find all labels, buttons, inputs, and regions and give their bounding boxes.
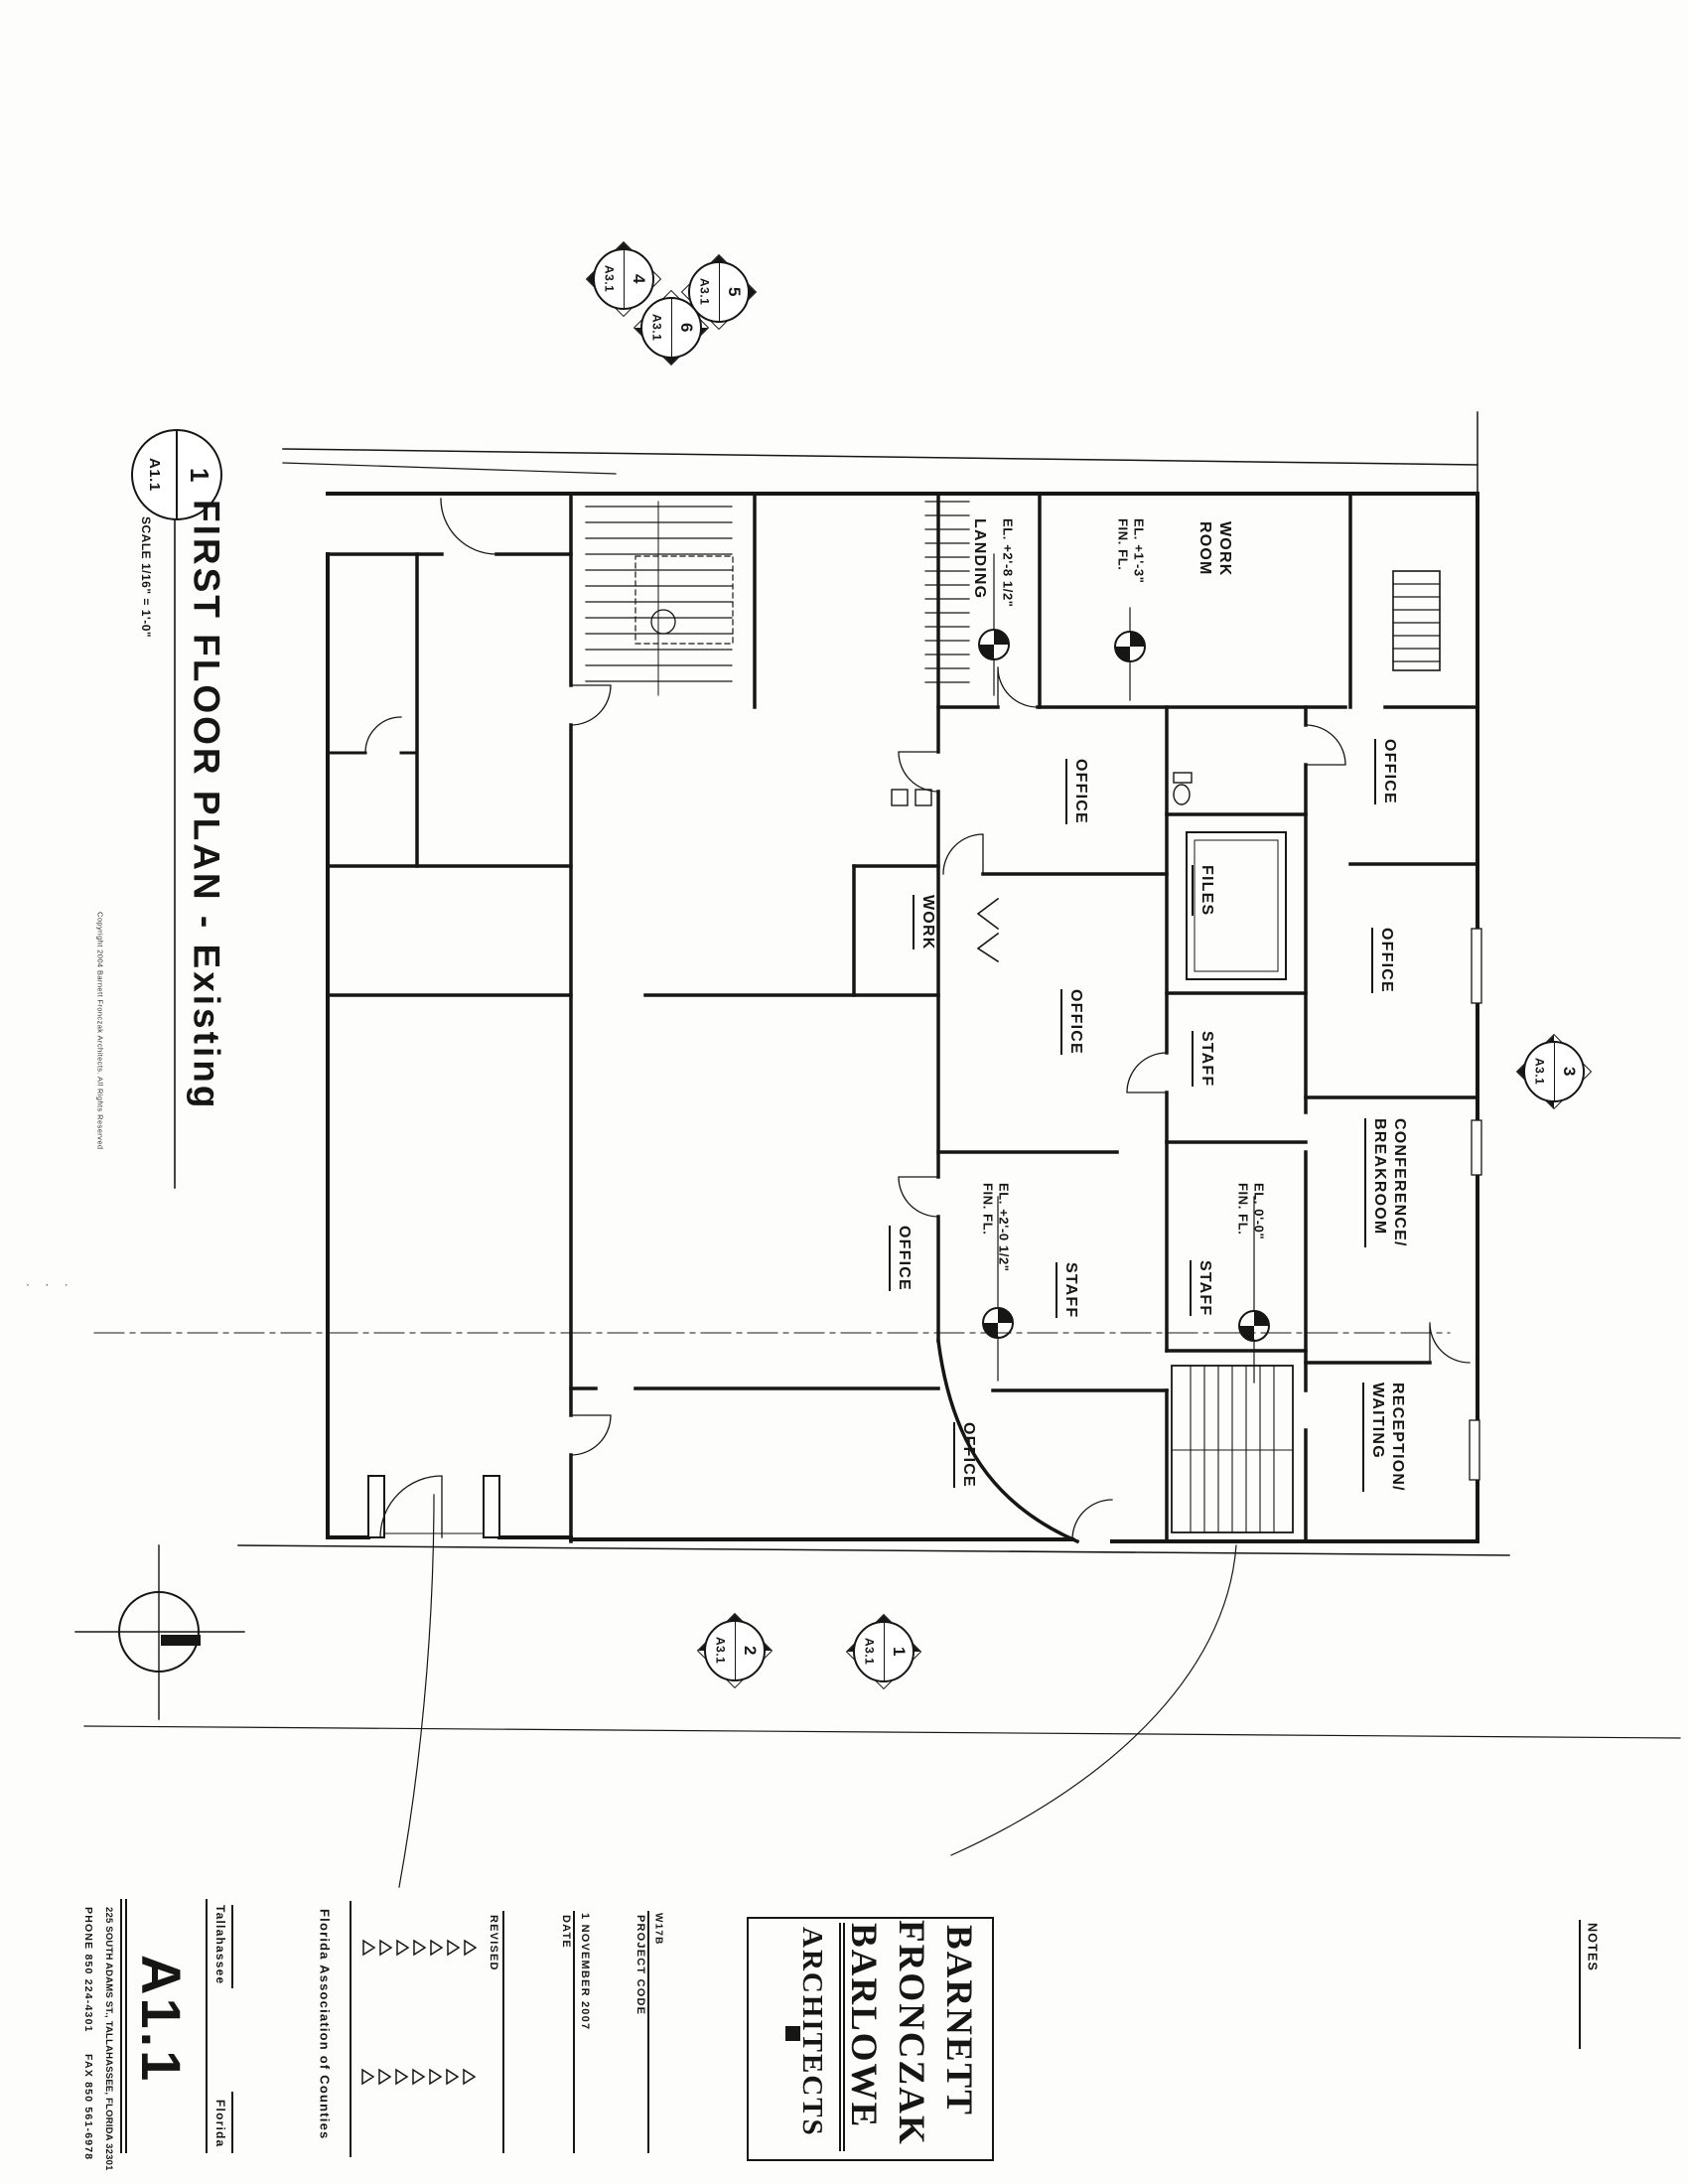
floor-plan-drawing [0, 0, 1688, 2184]
copyright-note: Copyright 2004 Barnett Fronczak Architec… [95, 912, 104, 1149]
room-label-reception-waiting: RECEPTION/ WAITING [1362, 1383, 1407, 1492]
titleblock-client: Florida Association of Counties [316, 1909, 332, 2139]
elevation-callout-corridor: EL. +2'-0 1/2" FIN. FL. [979, 1183, 1012, 1272]
architect-logo-rule [843, 1923, 845, 2151]
titleblock-date-value: 1 NOVEMBER 2007 [577, 1913, 591, 2030]
detail-marker-6: A3.16 [632, 288, 711, 367]
detail-marker-3: A3.13 [1514, 1032, 1594, 1111]
titleblock-rule [350, 1901, 352, 2157]
tick-dots: · · · [26, 1277, 74, 1291]
room-label-staff-3: STAFF [1190, 1260, 1214, 1316]
titleblock-fax: FAX 850 561-6978 [81, 2054, 94, 2160]
room-label-office-center-mid: OFFICE [1060, 989, 1085, 1055]
elevation-callout-workroom: EL. +1'-3" FIN. FL. [1114, 518, 1147, 583]
titleblock-rule [231, 1905, 233, 1988]
architect-name-line2: FRONCZAK [893, 1920, 929, 2146]
drawing-title: FIRST FLOOR PLAN - Existing [183, 500, 228, 1110]
detail-marker-2: A3.12 [695, 1611, 774, 1690]
room-label-office-center-top: OFFICE [1065, 759, 1090, 824]
room-label-office-east-mid: OFFICE [1371, 928, 1396, 993]
titleblock-rule [206, 1899, 208, 2153]
drawing-sheet: A1.1 1 FIRST FLOOR PLAN - Existing SCALE… [0, 0, 1688, 2184]
titleblock-address: 225 SOUTH ADAMS ST., TALLAHASSEE, FLORID… [102, 1907, 114, 2171]
drawing-scale: SCALE 1/16" = 1'-0" [138, 516, 153, 638]
room-label-office-south: OFFICE [953, 1422, 978, 1488]
architect-name-line1: BARNETT [940, 1925, 977, 2116]
titleblock-project-code-value: W17B [651, 1913, 664, 1946]
architect-sub-label: ARCHITECTS [797, 1927, 826, 2137]
detail-marker-1: A3.11 [844, 1612, 923, 1691]
room-label-landing: LANDING [969, 518, 989, 599]
titleblock-rule [647, 1911, 649, 2153]
room-label-conference-breakroom: CONFERENCE/ BREAKROOM [1364, 1118, 1409, 1247]
titleblock-state: Florida [212, 2100, 227, 2147]
titleblock-rule [502, 1911, 504, 2153]
titleblock-revised-label: REVISED [486, 1915, 499, 1971]
room-label-staff-2: STAFF [1055, 1262, 1080, 1318]
room-label-staff-1: STAFF [1192, 1031, 1216, 1087]
titleblock-project-code-label: PROJECT CODE [633, 1915, 646, 2015]
notes-label: NOTES [1584, 1923, 1600, 1971]
titleblock-city: Tallahassee [212, 1905, 227, 1984]
titleblock-rule [231, 2092, 233, 2153]
room-label-office-ne: OFFICE [1374, 739, 1399, 804]
architect-logo-square-icon [785, 2026, 800, 2041]
architect-name-line3: BARLOWE [845, 1923, 882, 2128]
titleblock-rule [573, 1911, 575, 2153]
room-label-files: FILES [1192, 865, 1216, 916]
titleblock-phone: PHONE 850 224-4301 [81, 1907, 94, 2033]
room-label-office-west-mid: OFFICE [889, 1226, 914, 1291]
titleblock-date-label: DATE [558, 1915, 572, 1949]
elevation-callout-landing: EL. +2'-8 1/2" [999, 518, 1015, 608]
room-label-work: WORK [913, 895, 937, 949]
architect-logo-rule [839, 1923, 841, 2151]
notes-rule [1579, 1920, 1581, 2049]
room-label-work-room: WORK ROOM [1195, 521, 1234, 576]
titleblock-sheet-number: A1.1 [126, 1955, 196, 2084]
elevation-callout-main: EL. 0'-0" FIN. FL. [1234, 1183, 1267, 1239]
titleblock-rule [120, 1899, 122, 2153]
